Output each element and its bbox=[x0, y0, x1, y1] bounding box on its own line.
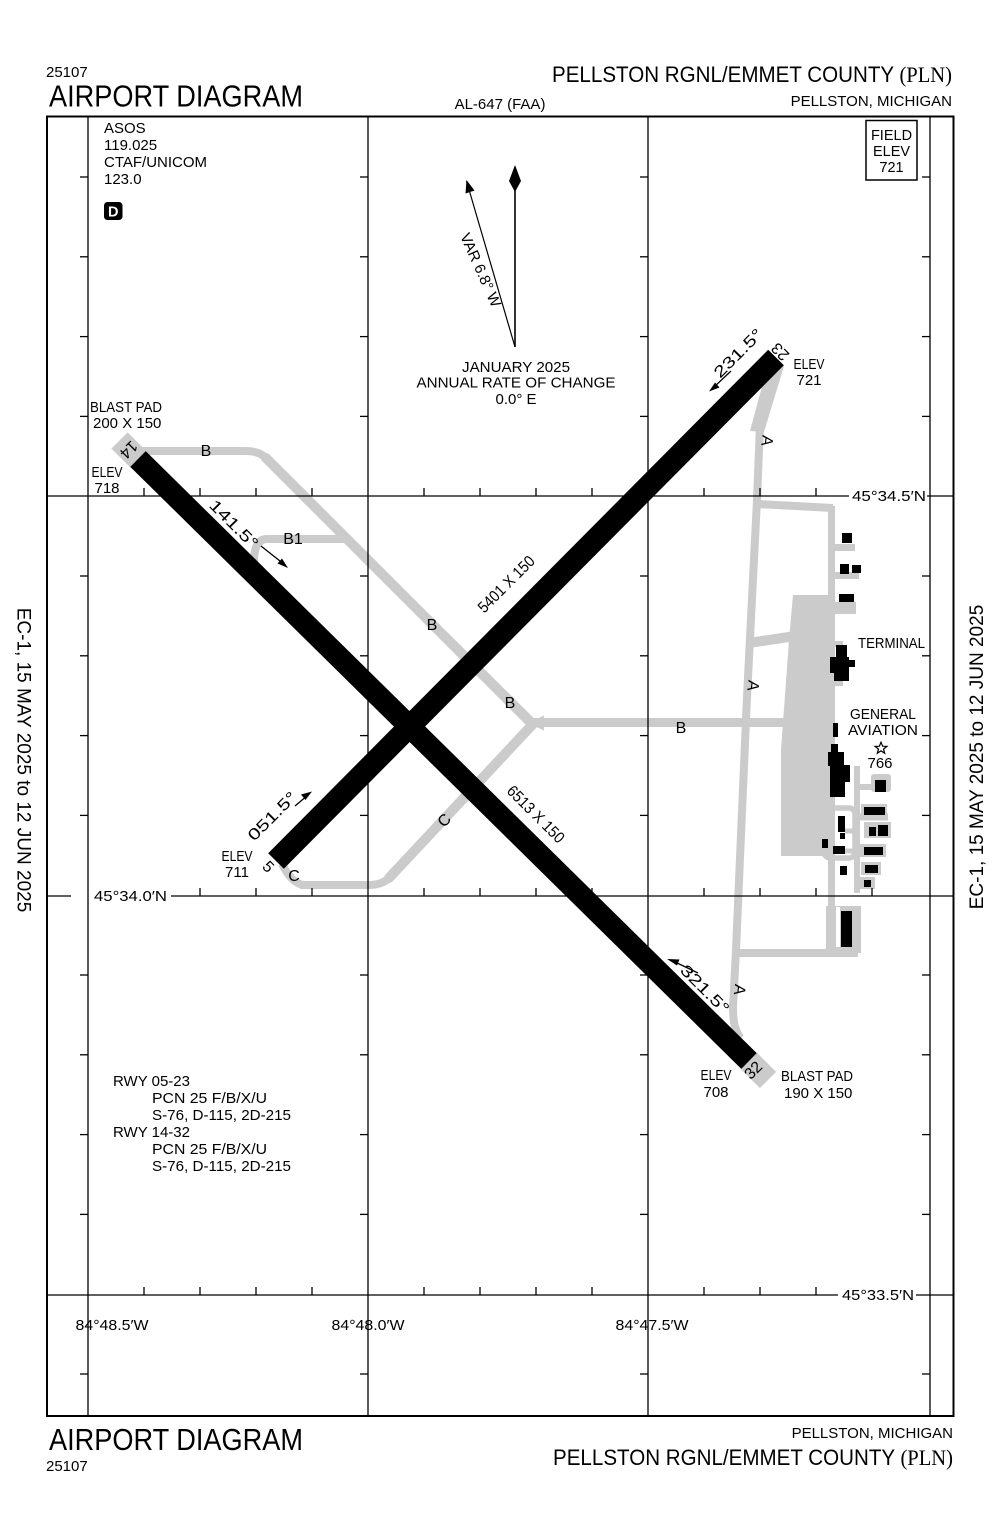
svg-text:721: 721 bbox=[796, 372, 821, 389]
svg-text:708: 708 bbox=[703, 1084, 728, 1101]
svg-text:RWY 05-23: RWY 05-23 bbox=[113, 1073, 190, 1090]
svg-text:45°33.5′N: 45°33.5′N bbox=[842, 1287, 914, 1304]
svg-text:AIRPORT DIAGRAM: AIRPORT DIAGRAM bbox=[49, 1422, 303, 1457]
svg-text:0.0° E: 0.0° E bbox=[495, 391, 536, 408]
svg-text:S-76, D-115, 2D-215: S-76, D-115, 2D-215 bbox=[152, 1107, 291, 1124]
svg-text:84°48.5′W: 84°48.5′W bbox=[76, 1317, 150, 1334]
svg-text:FIELD: FIELD bbox=[871, 128, 912, 144]
svg-text:123.0: 123.0 bbox=[104, 171, 142, 188]
svg-text:ELEV: ELEV bbox=[794, 356, 825, 373]
svg-text:ANNUAL RATE OF CHANGE: ANNUAL RATE OF CHANGE bbox=[417, 375, 616, 392]
svg-text:BLAST PAD: BLAST PAD bbox=[90, 399, 162, 416]
svg-text:25107: 25107 bbox=[46, 1458, 88, 1475]
svg-text:190 X 150: 190 X 150 bbox=[784, 1085, 852, 1102]
svg-text:B: B bbox=[427, 617, 438, 634]
svg-text:PELLSTON RGNL/EMMET COUNTY (PL: PELLSTON RGNL/EMMET COUNTY (PLN) bbox=[552, 62, 952, 87]
svg-text:45°34.5′N: 45°34.5′N bbox=[852, 488, 926, 505]
svg-text:84°47.5′W: 84°47.5′W bbox=[616, 1317, 690, 1334]
svg-text:CTAF/UNICOM: CTAF/UNICOM bbox=[104, 154, 207, 171]
svg-text:PELLSTON RGNL/EMMET COUNTY (PL: PELLSTON RGNL/EMMET COUNTY (PLN) bbox=[553, 1445, 953, 1470]
svg-text:711: 711 bbox=[225, 864, 249, 881]
svg-text:ELEV: ELEV bbox=[92, 464, 123, 481]
svg-text:PELLSTON, MICHIGAN: PELLSTON, MICHIGAN bbox=[792, 1425, 953, 1442]
svg-text:AIRPORT DIAGRAM: AIRPORT DIAGRAM bbox=[49, 79, 303, 114]
svg-text:ELEV: ELEV bbox=[873, 144, 910, 160]
svg-text:721: 721 bbox=[879, 160, 903, 176]
svg-text:718: 718 bbox=[94, 480, 119, 497]
svg-text:AVIATION: AVIATION bbox=[848, 723, 918, 739]
svg-text:45°34.0′N: 45°34.0′N bbox=[94, 888, 167, 905]
svg-text:EC-1, 15 MAY 2025 to 12 JUN: EC-1, 15 MAY 2025 to 12 JUN 2025 bbox=[13, 608, 34, 913]
svg-text:119.025: 119.025 bbox=[104, 137, 157, 154]
svg-text:ELEV: ELEV bbox=[222, 848, 253, 865]
svg-text:C: C bbox=[288, 868, 300, 885]
svg-text:200 X 150: 200 X 150 bbox=[93, 415, 161, 432]
svg-text:GENERAL: GENERAL bbox=[850, 707, 916, 723]
svg-text:B: B bbox=[201, 443, 212, 460]
svg-text:PCN 25 F/B/X/U: PCN 25 F/B/X/U bbox=[152, 1090, 267, 1107]
svg-text:TERMINAL: TERMINAL bbox=[858, 636, 925, 652]
svg-text:BLAST PAD: BLAST PAD bbox=[781, 1068, 853, 1085]
svg-text:B: B bbox=[676, 720, 687, 737]
svg-text:766: 766 bbox=[867, 755, 892, 772]
svg-text:PCN 25 F/B/X/U: PCN 25 F/B/X/U bbox=[152, 1141, 267, 1158]
svg-text:JANUARY 2025: JANUARY 2025 bbox=[462, 359, 570, 376]
svg-text:B1: B1 bbox=[283, 531, 303, 548]
svg-text:ELEV: ELEV bbox=[701, 1067, 732, 1084]
svg-text:S-76, D-115, 2D-215: S-76, D-115, 2D-215 bbox=[152, 1158, 291, 1175]
svg-text:D: D bbox=[108, 205, 118, 221]
svg-text:RWY 14-32: RWY 14-32 bbox=[113, 1124, 190, 1141]
svg-text:B: B bbox=[505, 695, 516, 712]
svg-text:PELLSTON, MICHIGAN: PELLSTON, MICHIGAN bbox=[791, 93, 952, 110]
svg-text:AL-647 (FAA): AL-647 (FAA) bbox=[455, 96, 546, 113]
svg-text:ASOS: ASOS bbox=[104, 120, 146, 137]
svg-text:EC-1, 15 MAY 2025 to 12 JUN: EC-1, 15 MAY 2025 to 12 JUN 2025 bbox=[967, 605, 988, 910]
